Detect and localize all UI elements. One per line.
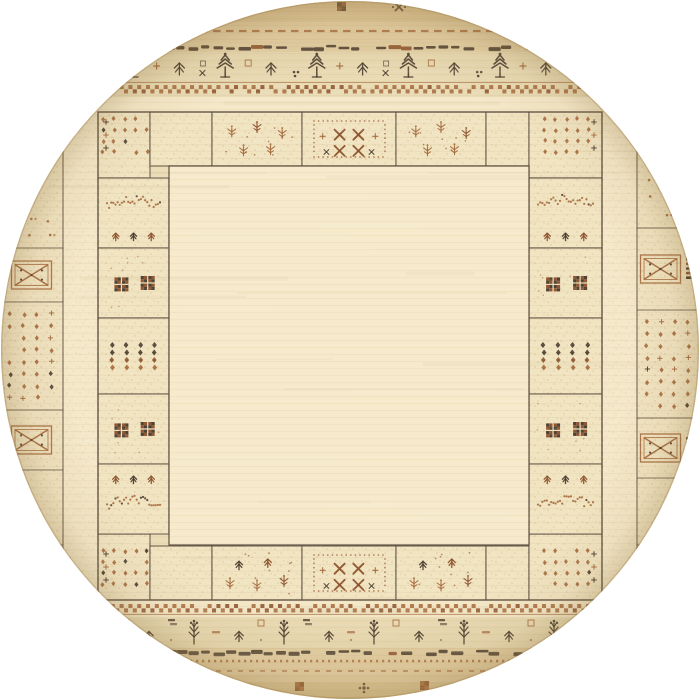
rug-product-image: Top-down product photo of a round hand-k… [0, 0, 700, 700]
round-rug-photo [0, 0, 700, 700]
vignette [1, 1, 699, 699]
rug-canvas [0, 0, 700, 700]
rug [0, 0, 700, 700]
page: { "meta": { "domain": "Natural-Image", "… [0, 0, 700, 700]
